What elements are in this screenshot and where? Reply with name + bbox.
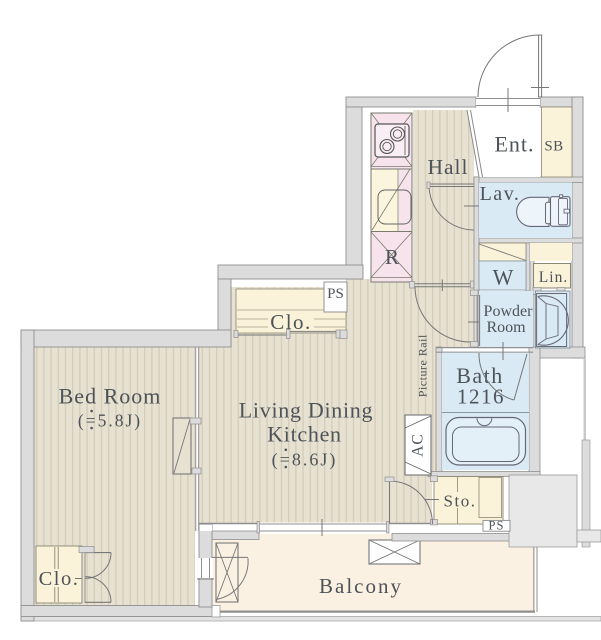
- svg-text:Kitchen: Kitchen: [267, 422, 342, 447]
- svg-text:R: R: [385, 245, 399, 269]
- svg-text:1216: 1216: [457, 385, 505, 409]
- svg-text:Lin.: Lin.: [539, 269, 568, 286]
- svg-text:SB: SB: [544, 139, 563, 155]
- svg-text:Powder: Powder: [484, 303, 534, 320]
- svg-text:Hall: Hall: [427, 155, 468, 179]
- svg-text:Ent.: Ent.: [494, 132, 534, 157]
- svg-text:Lav.: Lav.: [480, 183, 521, 205]
- svg-text:Living Dining: Living Dining: [239, 398, 373, 423]
- svg-text:Clo.: Clo.: [39, 568, 80, 590]
- svg-text:Picture Rail: Picture Rail: [416, 334, 430, 397]
- svg-text:PS: PS: [327, 286, 344, 302]
- svg-text:PS: PS: [489, 519, 505, 533]
- svg-text:Sto.: Sto.: [444, 492, 477, 511]
- svg-text:Room: Room: [486, 319, 526, 336]
- svg-text:Bed Room: Bed Room: [59, 384, 162, 409]
- svg-text:Clo.: Clo.: [270, 310, 312, 334]
- svg-text:W: W: [493, 265, 514, 290]
- svg-text:AC: AC: [410, 433, 427, 457]
- svg-text:Balcony: Balcony: [319, 574, 403, 598]
- svg-text:(=5.8J): (=5.8J): [78, 411, 142, 431]
- svg-text:(=8.6J): (=8.6J): [272, 450, 338, 471]
